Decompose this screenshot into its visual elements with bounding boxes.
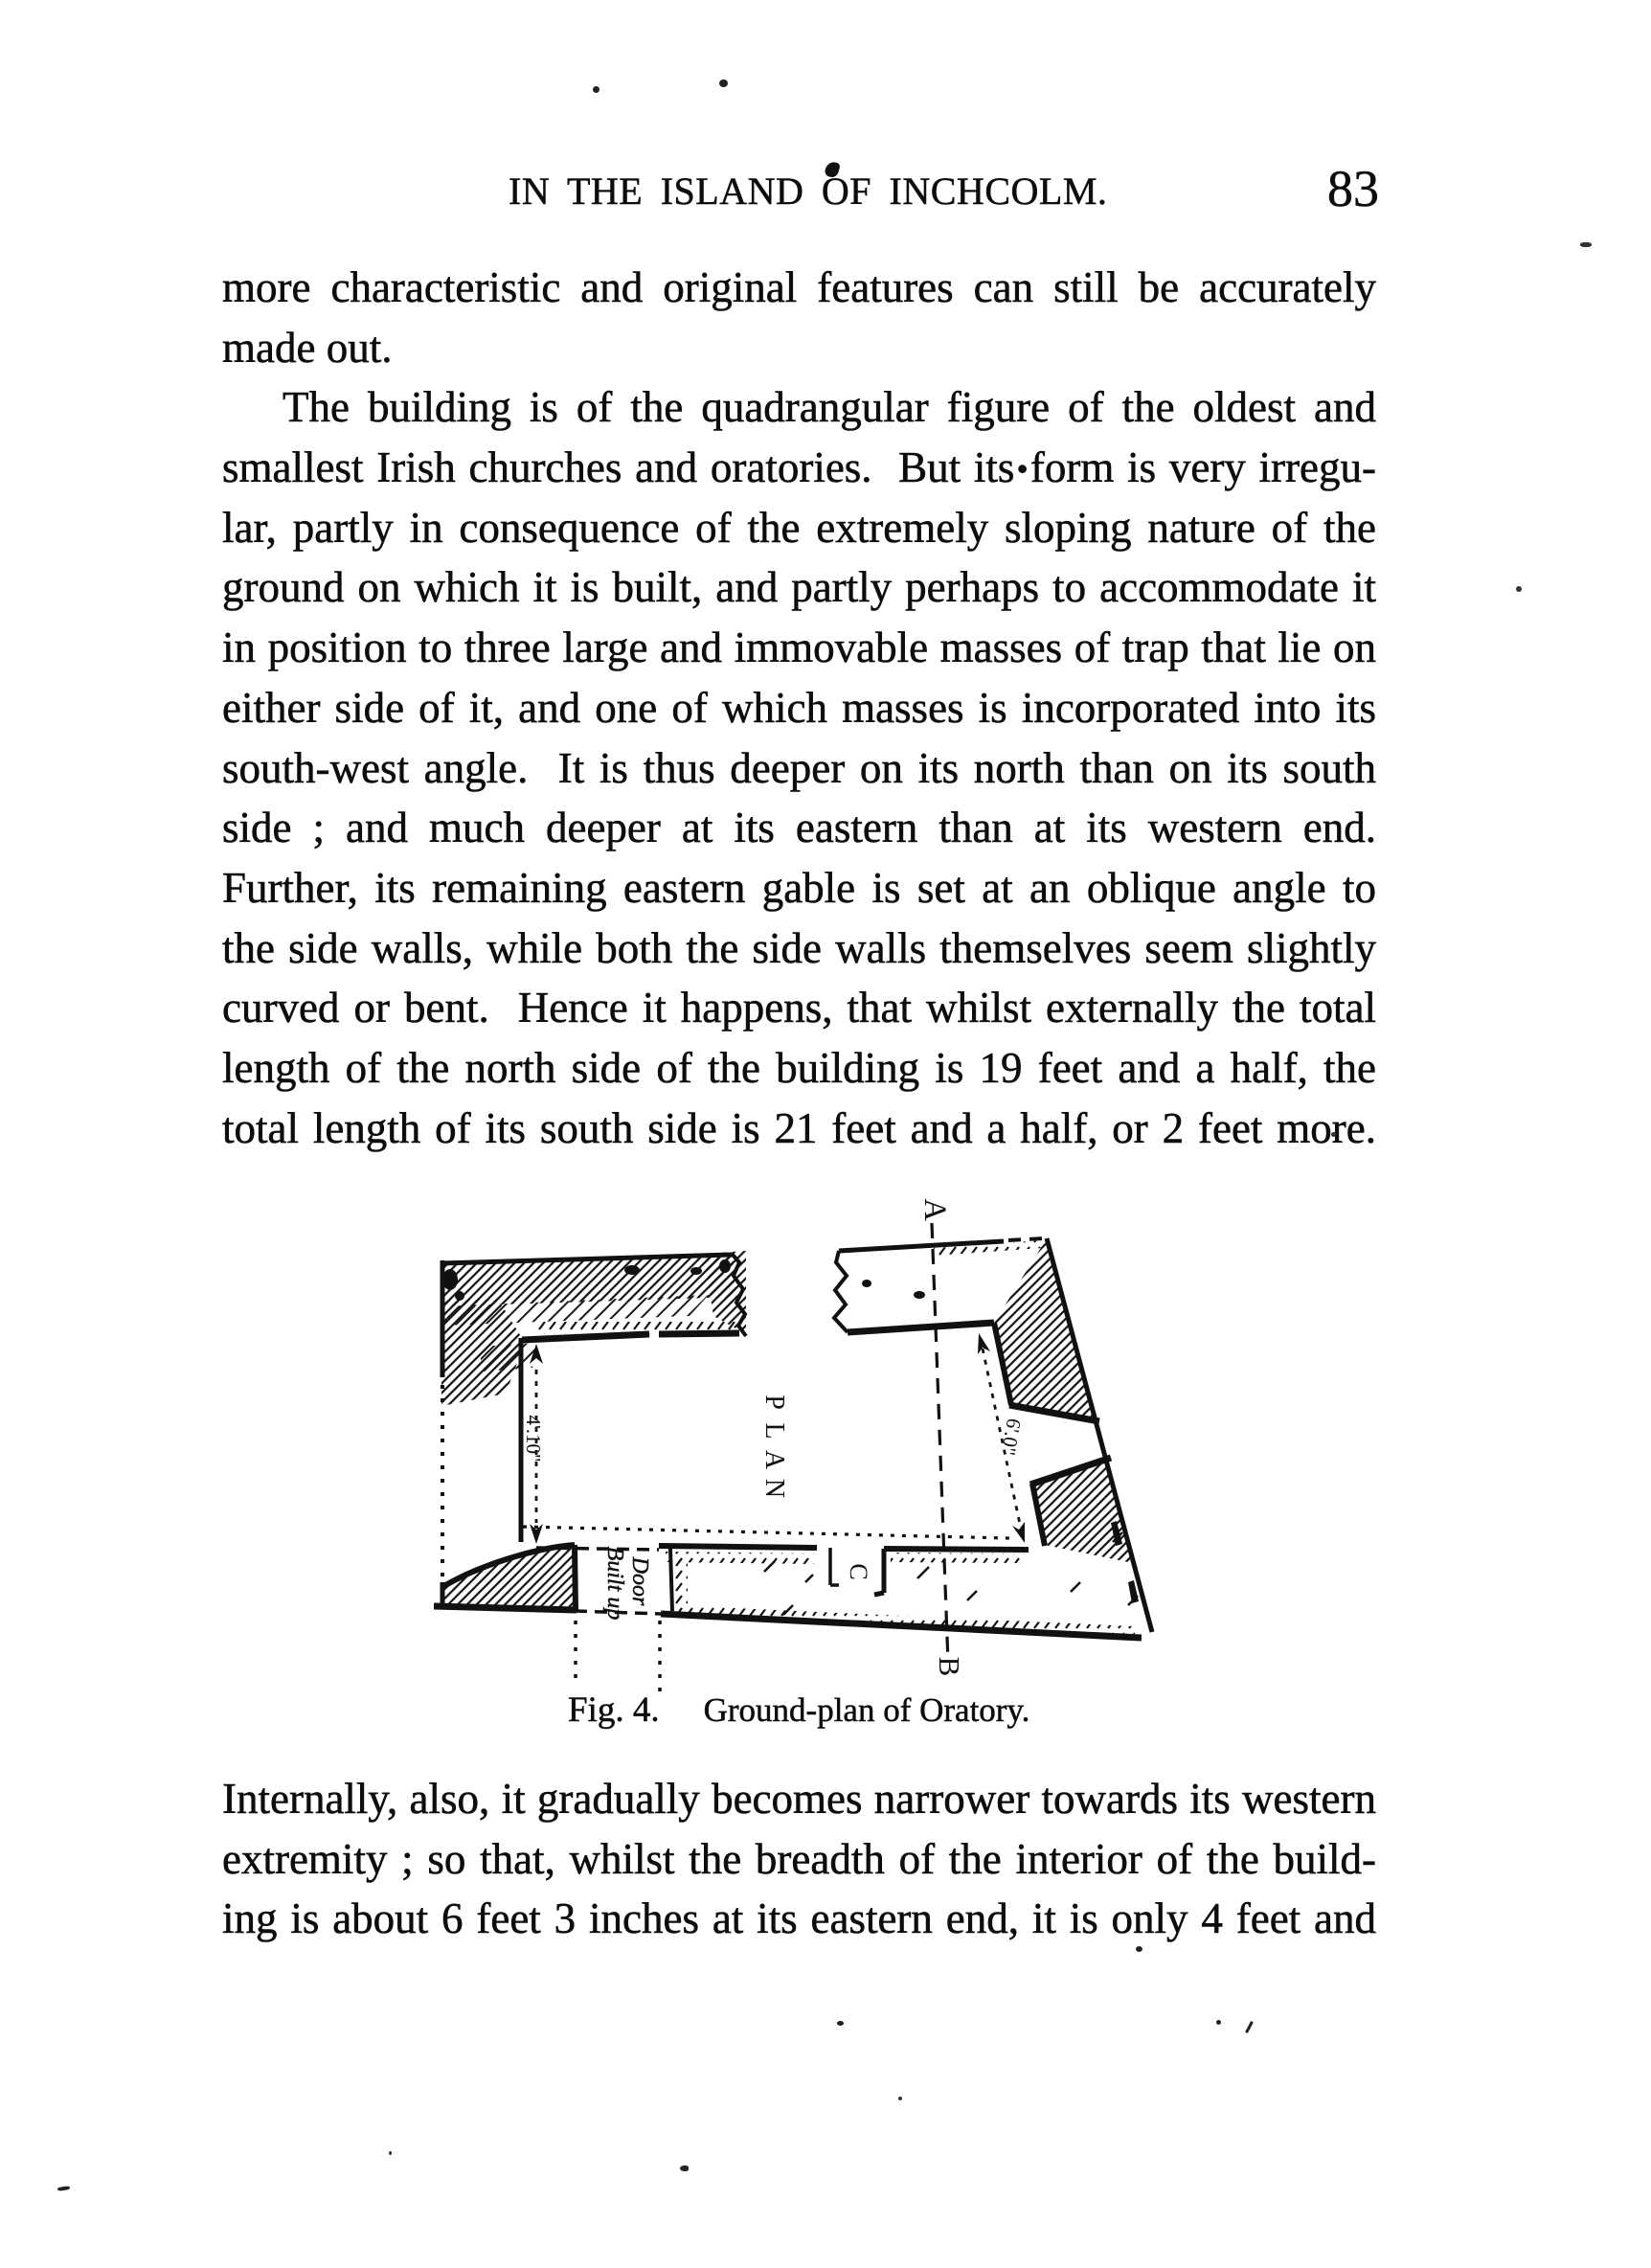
svg-text:4'.10": 4'.10" xyxy=(522,1415,545,1462)
svg-text:Built up: Built up xyxy=(602,1547,627,1621)
svg-text:P: P xyxy=(759,1395,789,1410)
svg-text:6'.0": 6'.0" xyxy=(997,1417,1026,1457)
svg-text:C: C xyxy=(845,1563,872,1579)
svg-text:Door: Door xyxy=(627,1556,652,1606)
svg-text:A: A xyxy=(759,1450,789,1470)
svg-text:A: A xyxy=(917,1198,952,1221)
svg-text:L: L xyxy=(759,1422,789,1439)
svg-text:B: B xyxy=(933,1657,966,1677)
svg-text:N: N xyxy=(759,1479,789,1498)
